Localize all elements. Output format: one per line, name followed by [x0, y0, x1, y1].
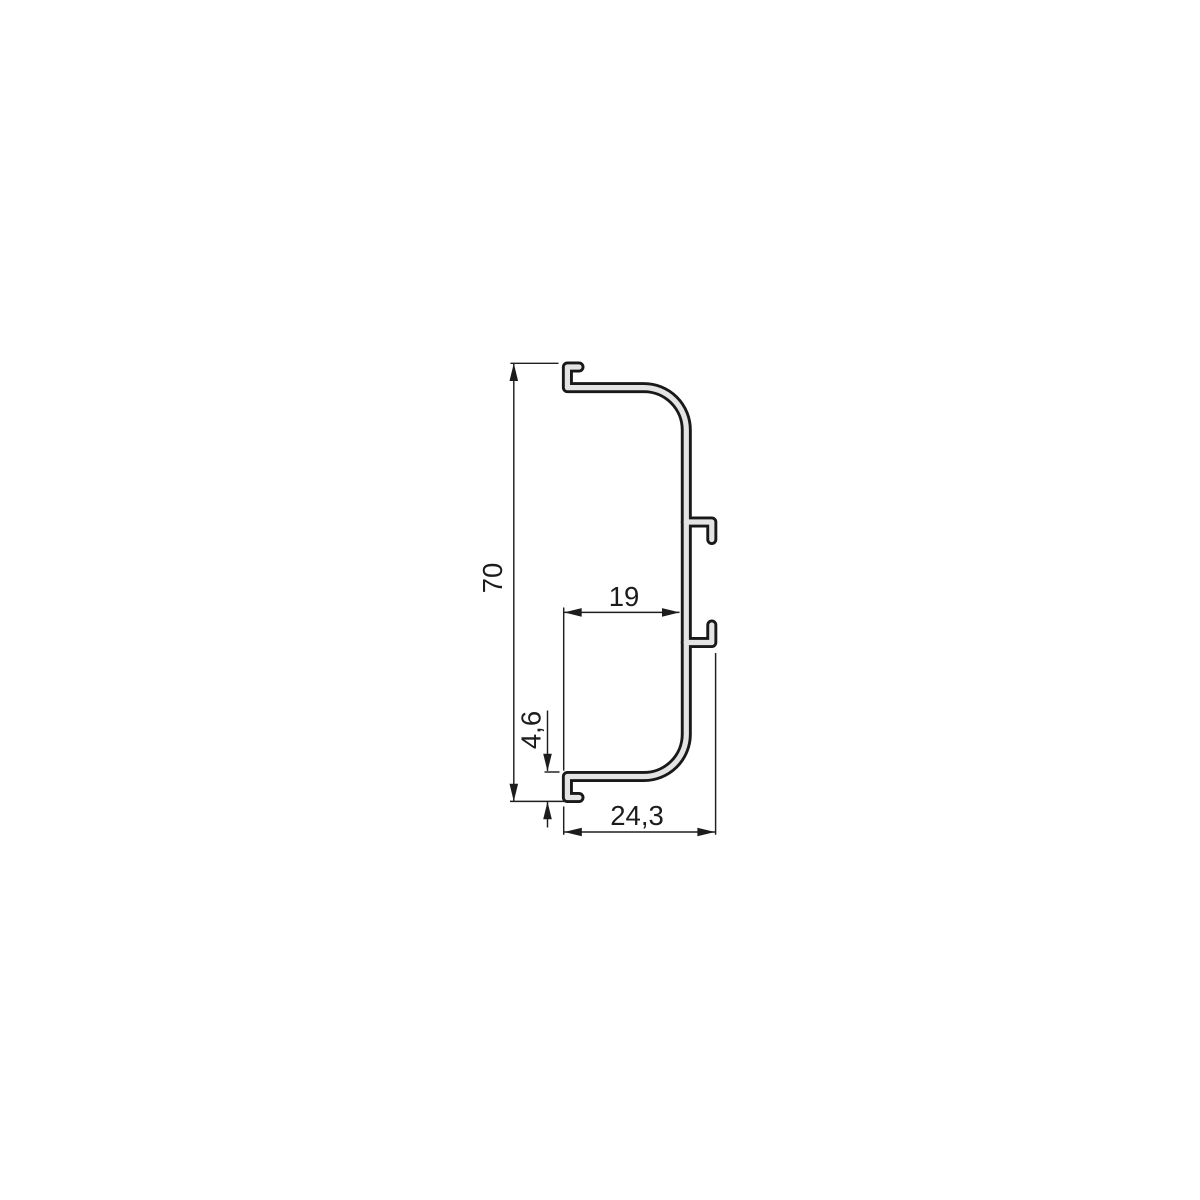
svg-text:4,6: 4,6: [516, 711, 547, 749]
svg-text:70: 70: [477, 563, 508, 594]
svg-text:24,3: 24,3: [610, 800, 664, 831]
svg-text:19: 19: [609, 581, 640, 612]
